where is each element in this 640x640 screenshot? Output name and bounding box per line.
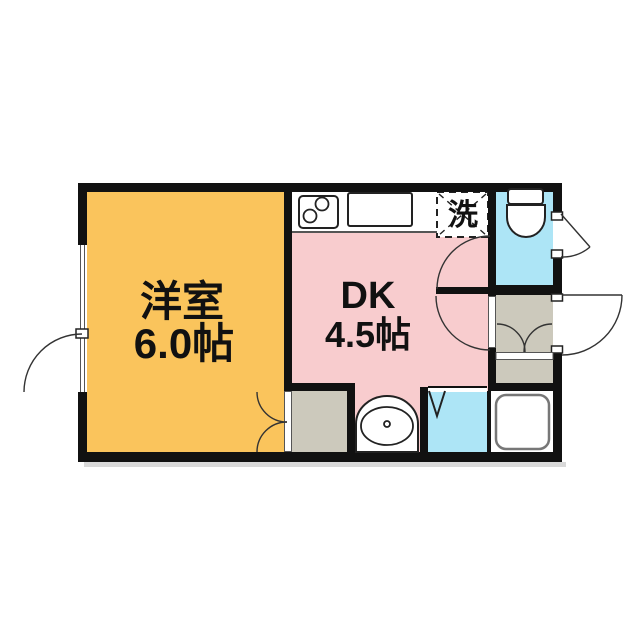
wall-left-upper [78, 183, 87, 245]
western-room-size: 6.0帖 [134, 320, 234, 367]
wall-top [78, 183, 562, 192]
wall-basin-left [347, 383, 355, 452]
toilet-door-leaf [436, 287, 490, 294]
floor-plan: 洋室 6.0帖 DK 4.5帖 洗 [0, 0, 640, 640]
toilet-icon [507, 189, 545, 237]
bathtub-icon [496, 395, 549, 449]
wall-western-dk [284, 192, 292, 388]
wall-bath-divider [487, 391, 491, 452]
washroom [428, 392, 487, 452]
kitchen-counter-edge [292, 231, 437, 233]
window-left [78, 245, 87, 392]
hall-door-plane [489, 297, 496, 348]
entrance-hinge [552, 294, 563, 301]
western-room-label: 洋室 [140, 278, 224, 325]
laundry-label: 洗 [448, 199, 478, 232]
washroom-door-gap [428, 388, 487, 392]
entrance-door-gap [553, 295, 562, 352]
shoe-closet-door-plane [496, 353, 553, 360]
kitchen-sink-icon [348, 193, 412, 226]
toilet-window-hinge [552, 212, 563, 220]
dk-size: 4.5帖 [325, 314, 411, 355]
wall-right-a [553, 183, 562, 213]
entrance-hall [496, 295, 553, 352]
bedroom-closet [292, 391, 347, 452]
washbasin-icon [356, 396, 418, 452]
toilet-window-latch [552, 250, 563, 258]
shoe-closet [496, 360, 553, 383]
wall-hall-bottom [488, 383, 562, 391]
wall-left-lower [78, 392, 87, 462]
floor-plan-svg: 洋室 6.0帖 DK 4.5帖 洗 [0, 0, 640, 640]
entrance-latch [552, 346, 563, 353]
wall-right-c [553, 352, 562, 452]
dk-label: DK [341, 275, 396, 317]
plan-shadow [84, 462, 566, 467]
wall-toilet-left [488, 192, 496, 296]
wall-bottom [78, 452, 562, 462]
wall-closet-top [284, 383, 355, 391]
wall-basin-right [420, 387, 428, 452]
washroom-door-track [428, 386, 487, 388]
stove-icon [299, 196, 338, 228]
